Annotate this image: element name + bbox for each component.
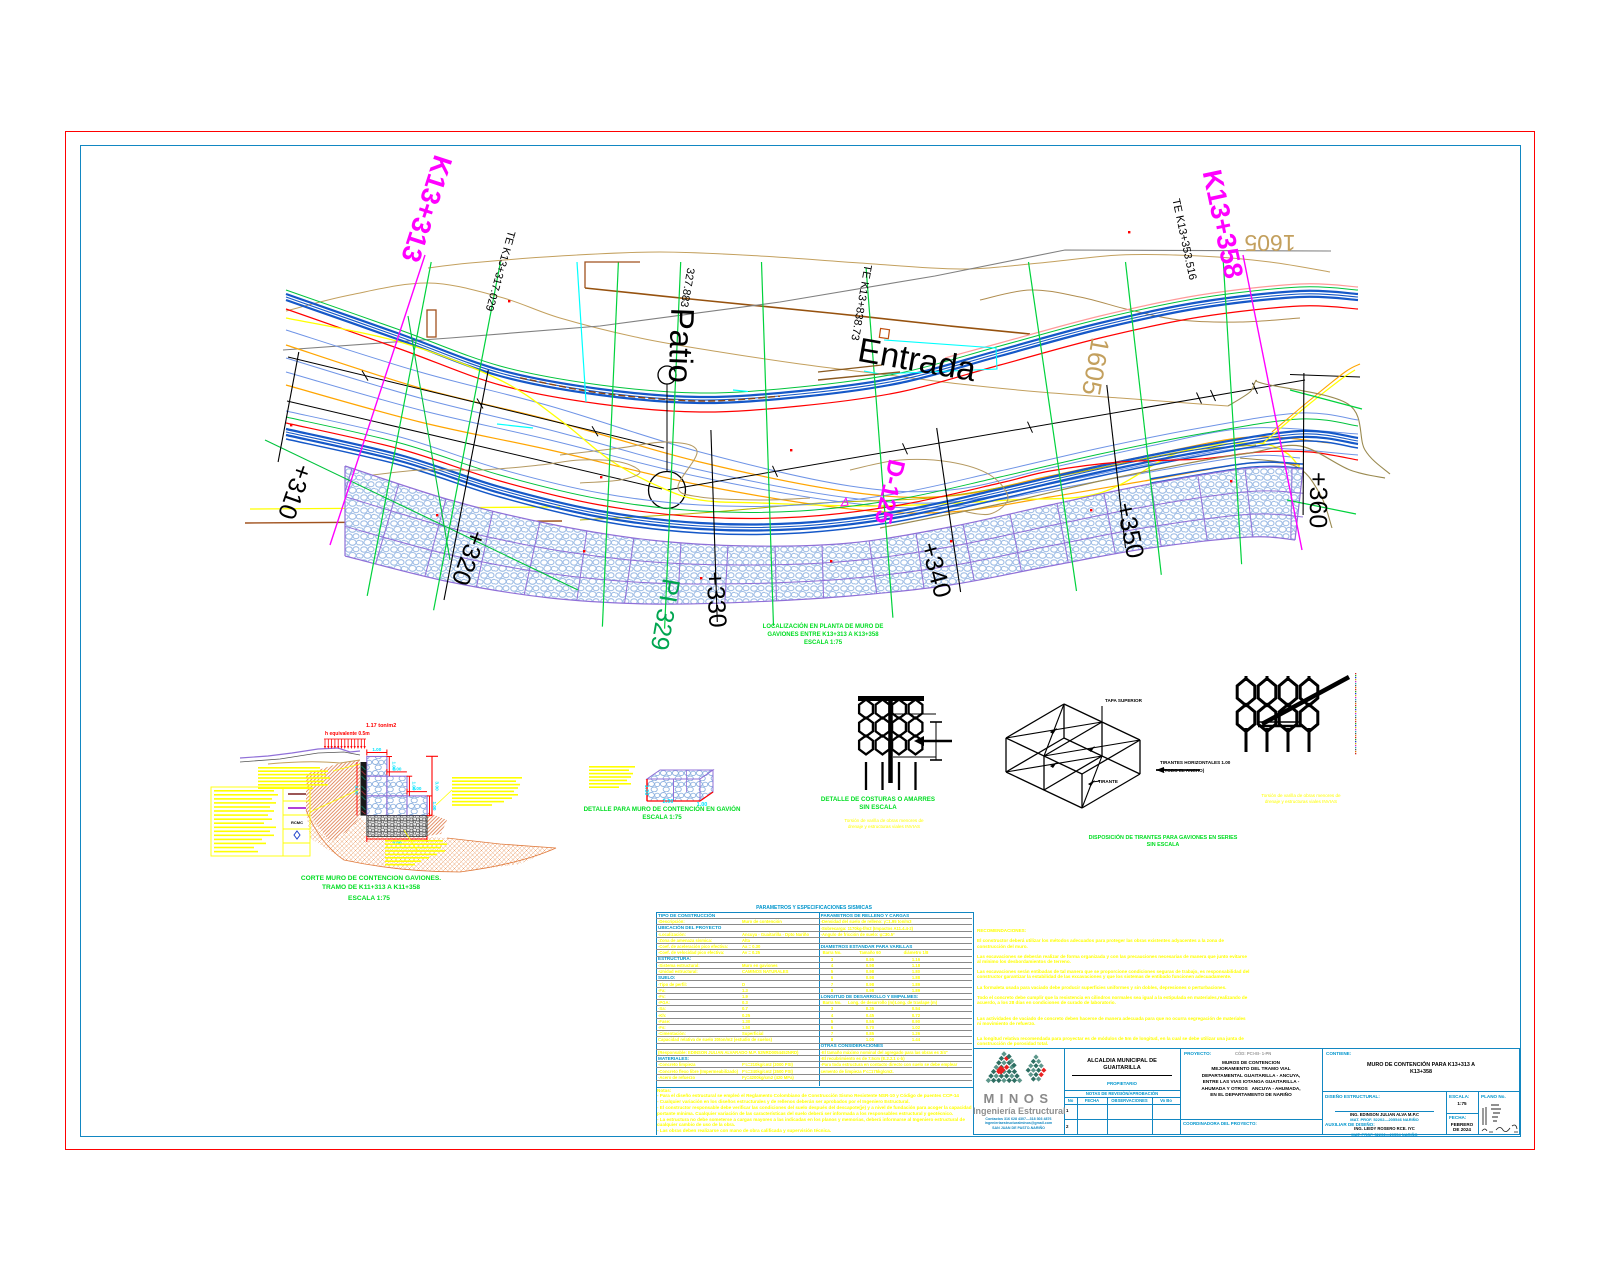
svg-text:2.00: 2.00: [663, 799, 674, 805]
svg-text:h equivalente 0.5m: h equivalente 0.5m: [325, 731, 370, 737]
svg-text:TIRANTE: TIRANTE: [1098, 779, 1118, 784]
svg-text:DETALLE DE COSTURAS O AMARRES: DETALLE DE COSTURAS O AMARRES: [821, 796, 935, 803]
svg-text:K13+358: K13+358: [1197, 167, 1249, 281]
svg-text:TIRANTES HORIZONTALES 1.00: TIRANTES HORIZONTALES 1.00: [1160, 760, 1231, 765]
svg-text:TE K13+838.73: TE K13+838.73: [848, 264, 873, 342]
svg-text:1.00: 1.00: [393, 767, 402, 772]
svg-text:1.00: 1.00: [372, 747, 381, 752]
svg-text:1.00: 1.00: [643, 785, 649, 796]
svg-text:DETALLE PARA MURO DE CONTENCIÓ: DETALLE PARA MURO DE CONTENCIÓN EN GAVIÓ…: [584, 805, 741, 813]
svg-text:LOCALIZACIÓN EN PLANTA DE MURO: LOCALIZACIÓN EN PLANTA DE MURO DE: [763, 622, 884, 630]
svg-text:Torsión de varilla de obras me: Torsión de varilla de obras menores de: [844, 818, 924, 823]
svg-text:K13+313: K13+313: [395, 152, 458, 266]
svg-text:ESCALA 1:75: ESCALA 1:75: [642, 814, 682, 821]
svg-text:drenaje y estructuras viales I: drenaje y estructuras viales INVIAS: [848, 824, 920, 829]
svg-text:TE K13+317.029: TE K13+317.029: [483, 229, 517, 312]
svg-text:1.00: 1.00: [432, 802, 437, 811]
svg-text:3.00: 3.00: [434, 781, 440, 791]
svg-text:+360: +360: [1304, 472, 1333, 529]
svg-text:1.17 ton/m2: 1.17 ton/m2: [366, 723, 396, 729]
svg-text:+330: +330: [700, 571, 731, 629]
svg-text:1605: 1605: [1244, 230, 1295, 256]
svg-text:TRAMO DE K11+313 A K11+358: TRAMO DE K11+313 A K11+358: [322, 884, 420, 891]
svg-text:drenaje y estructuras viales I: drenaje y estructuras viales INVIAS: [1265, 799, 1337, 804]
svg-text:ESCALA 1:75: ESCALA 1:75: [348, 895, 390, 902]
svg-text:Entrada: Entrada: [855, 331, 979, 389]
svg-text:+310: +310: [272, 460, 317, 522]
svg-text:3.00: 3.00: [353, 785, 359, 795]
svg-text:TE K13+353.516: TE K13+353.516: [1169, 198, 1198, 282]
svg-text:DISPOSICIÓN DE TIRANTES PARA G: DISPOSICIÓN DE TIRANTES PARA GAVIONES EN…: [1089, 833, 1238, 841]
svg-text:Patio: Patio: [662, 307, 702, 383]
svg-text:CORTE MURO DE CONTENCION GAVIO: CORTE MURO DE CONTENCION GAVIONES.: [301, 875, 441, 882]
svg-text:SIN ESCALA: SIN ESCALA: [1147, 842, 1180, 848]
svg-text:SIN ESCALA: SIN ESCALA: [859, 804, 897, 811]
svg-text:ESCALA 1:75: ESCALA 1:75: [804, 640, 843, 646]
svg-text:1605: 1605: [1076, 335, 1116, 397]
svg-text:TAPA SUPERIOR: TAPA SUPERIOR: [1105, 698, 1143, 703]
svg-text:GAVIONES ENTRE K13+313 A K13+3: GAVIONES ENTRE K13+313 A K13+358: [767, 632, 879, 638]
svg-text:RCMC: RCMC: [291, 820, 303, 825]
svg-text:1.00: 1.00: [413, 786, 422, 791]
svg-text:Torsión de varilla de obras me: Torsión de varilla de obras menores de: [1261, 793, 1341, 798]
